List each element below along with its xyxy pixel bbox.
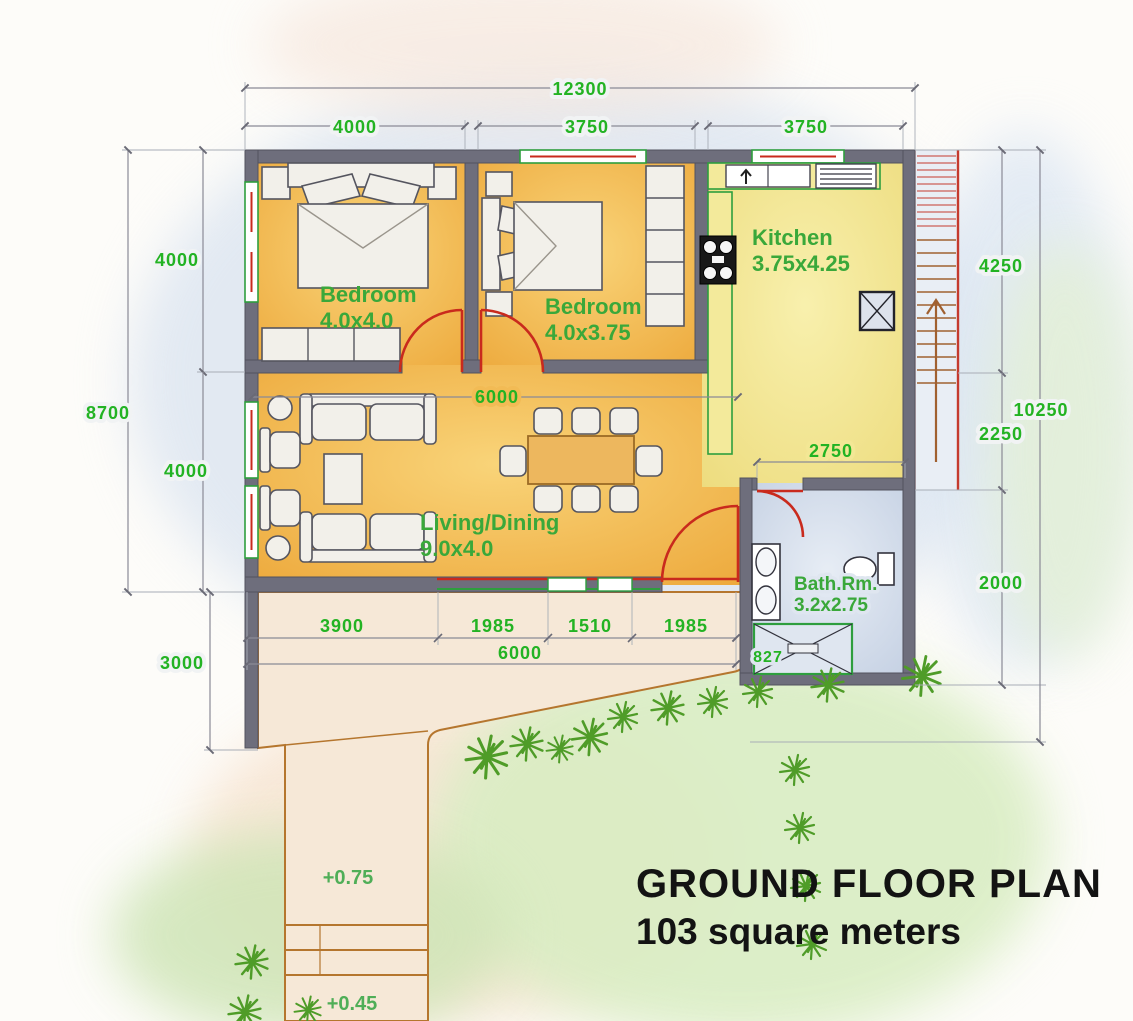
side-table <box>266 536 290 560</box>
bedroom2-window <box>520 150 646 163</box>
bedroom1-label: Bedroom <box>320 282 417 307</box>
closet <box>646 166 684 326</box>
bedroom2-size: 4.0x3.75 <box>545 320 631 345</box>
tree-icon <box>572 719 607 755</box>
tree-icon <box>698 687 727 717</box>
bedroom2-label: Bedroom <box>545 294 642 319</box>
side-table <box>268 396 292 420</box>
dining-chair <box>636 446 662 476</box>
level-terrace: +0.75 <box>323 867 374 889</box>
living-window-left-upper <box>245 402 258 478</box>
kitchen-label: Kitchen <box>752 225 833 250</box>
bedroom1-size: 4.0x4.0 <box>320 308 393 333</box>
level-steps: +0.45 <box>327 993 378 1015</box>
dim-south-1: 3900 <box>320 616 364 636</box>
kitchen-window <box>752 150 844 163</box>
double-bed <box>482 198 602 290</box>
dim-tub: 827 <box>753 649 783 666</box>
tree-icon <box>780 755 809 785</box>
dim-right-outer: 10250 <box>1013 400 1068 420</box>
dim-top-left: 4000 <box>333 117 377 137</box>
dim-left-bottom: 4000 <box>164 461 208 481</box>
bedroom1-window <box>245 182 258 302</box>
stove <box>700 236 736 284</box>
dim-right-bath: 2000 <box>979 573 1023 593</box>
dim-right-mid: 2250 <box>979 424 1023 444</box>
armchair <box>260 486 300 530</box>
tree-icon <box>608 702 637 732</box>
tree-icon <box>652 692 684 725</box>
dim-left-outer: 8700 <box>86 403 130 423</box>
dining-chair <box>572 408 600 434</box>
tree-icon <box>511 728 543 761</box>
plan-title: GROUND FLOOR PLAN <box>636 862 1102 907</box>
dim-south-2: 1985 <box>471 616 515 636</box>
dim-south-3: 1510 <box>568 616 612 636</box>
nightstand <box>486 172 512 196</box>
kitchen-size: 3.75x4.25 <box>752 251 850 276</box>
kitchen-appliance <box>816 164 876 188</box>
tree-icon <box>236 946 268 979</box>
bath-label: Bath.Rm. <box>794 574 877 595</box>
tree-icon <box>547 736 573 763</box>
staircase <box>915 150 958 490</box>
dining-chair <box>500 446 526 476</box>
dining-table <box>528 436 634 484</box>
living-window-left-lower <box>245 486 258 558</box>
floor-plan-page: 12300 4000 3750 3750 8700 4000 4000 3000… <box>0 0 1133 1021</box>
bath-size: 3.2x2.75 <box>794 595 868 616</box>
tree-icon <box>785 813 814 843</box>
tree-icon <box>229 996 261 1021</box>
living-size: 9.0x4.0 <box>420 536 493 561</box>
nightstand <box>262 167 290 199</box>
dining-chair <box>534 408 562 434</box>
dim-right-kitchen: 4250 <box>979 256 1023 276</box>
vanity-sinks <box>752 544 780 620</box>
dim-left-top: 4000 <box>155 250 199 270</box>
kitchen-sink <box>726 165 810 187</box>
dim-south-4: 1985 <box>664 616 708 636</box>
tree-icon <box>466 736 507 778</box>
dining-chair <box>610 486 638 512</box>
dining-chair <box>610 408 638 434</box>
dim-left-terrace: 3000 <box>160 653 204 673</box>
dim-top-right: 3750 <box>784 117 828 137</box>
plan-area: 103 square meters <box>636 911 1102 953</box>
dim-hall-width: 2750 <box>809 441 853 461</box>
dim-living-opening: 6000 <box>475 387 519 407</box>
kitchen-counter-west <box>708 192 732 454</box>
double-bed <box>288 163 434 288</box>
title-block: GROUND FLOOR PLAN 103 square meters <box>636 862 1102 953</box>
armchair <box>260 428 300 472</box>
dim-overall-width: 12300 <box>552 79 607 99</box>
dim-terrace-width: 6000 <box>498 643 542 663</box>
dining-chair <box>534 486 562 512</box>
living-label: Living/Dining <box>420 510 559 535</box>
service-shaft <box>860 292 894 330</box>
dining-chair <box>572 486 600 512</box>
coffee-table <box>324 454 362 504</box>
dim-top-mid: 3750 <box>565 117 609 137</box>
